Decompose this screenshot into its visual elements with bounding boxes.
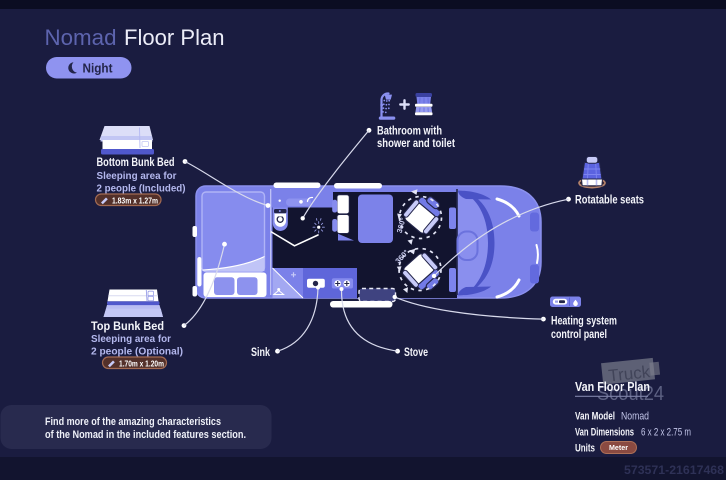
svg-text:Sleeping area for: Sleeping area for — [91, 333, 171, 345]
svg-text:6 x 2 x 2.75 m: 6 x 2 x 2.75 m — [641, 427, 691, 439]
svg-text:Bottom Bunk Bed: Bottom Bunk Bed — [97, 155, 175, 169]
svg-text:Night: Night — [83, 62, 114, 76]
svg-text:Nomad: Nomad — [621, 411, 649, 423]
svg-text:control panel: control panel — [551, 327, 607, 341]
svg-text:2 people (Included): 2 people (Included) — [97, 183, 186, 195]
svg-text:Van Model: Van Model — [575, 411, 615, 423]
svg-text:Rotatable seats: Rotatable seats — [575, 193, 644, 207]
svg-text:Find more of the amazing chara: Find more of the amazing characteristics — [45, 416, 221, 428]
svg-text:573571-21617468: 573571-21617468 — [624, 465, 725, 477]
svg-text:2 people (Optional): 2 people (Optional) — [91, 346, 183, 358]
svg-text:of the Nomad in the included f: of the Nomad in the included features se… — [45, 429, 246, 441]
svg-text:Top Bunk Bed: Top Bunk Bed — [91, 319, 164, 333]
svg-text:Nomad: Nomad — [45, 25, 117, 50]
svg-text:Heating system: Heating system — [551, 314, 617, 328]
svg-text:Sink: Sink — [251, 345, 270, 359]
svg-text:Units: Units — [575, 443, 595, 455]
svg-text:1.70m x 1.20m: 1.70m x 1.20m — [119, 359, 164, 369]
svg-text:1.83m x 1.27m: 1.83m x 1.27m — [112, 196, 158, 206]
svg-text:Floor Plan: Floor Plan — [124, 25, 225, 50]
svg-text:Stove: Stove — [404, 345, 428, 359]
svg-text:shower and toilet: shower and toilet — [377, 136, 455, 150]
svg-text:Van Floor Plan: Van Floor Plan — [575, 379, 650, 394]
svg-text:Sleeping area for: Sleeping area for — [97, 170, 177, 182]
svg-text:Meter: Meter — [609, 443, 628, 452]
svg-text:Van Dimensions: Van Dimensions — [575, 427, 634, 439]
